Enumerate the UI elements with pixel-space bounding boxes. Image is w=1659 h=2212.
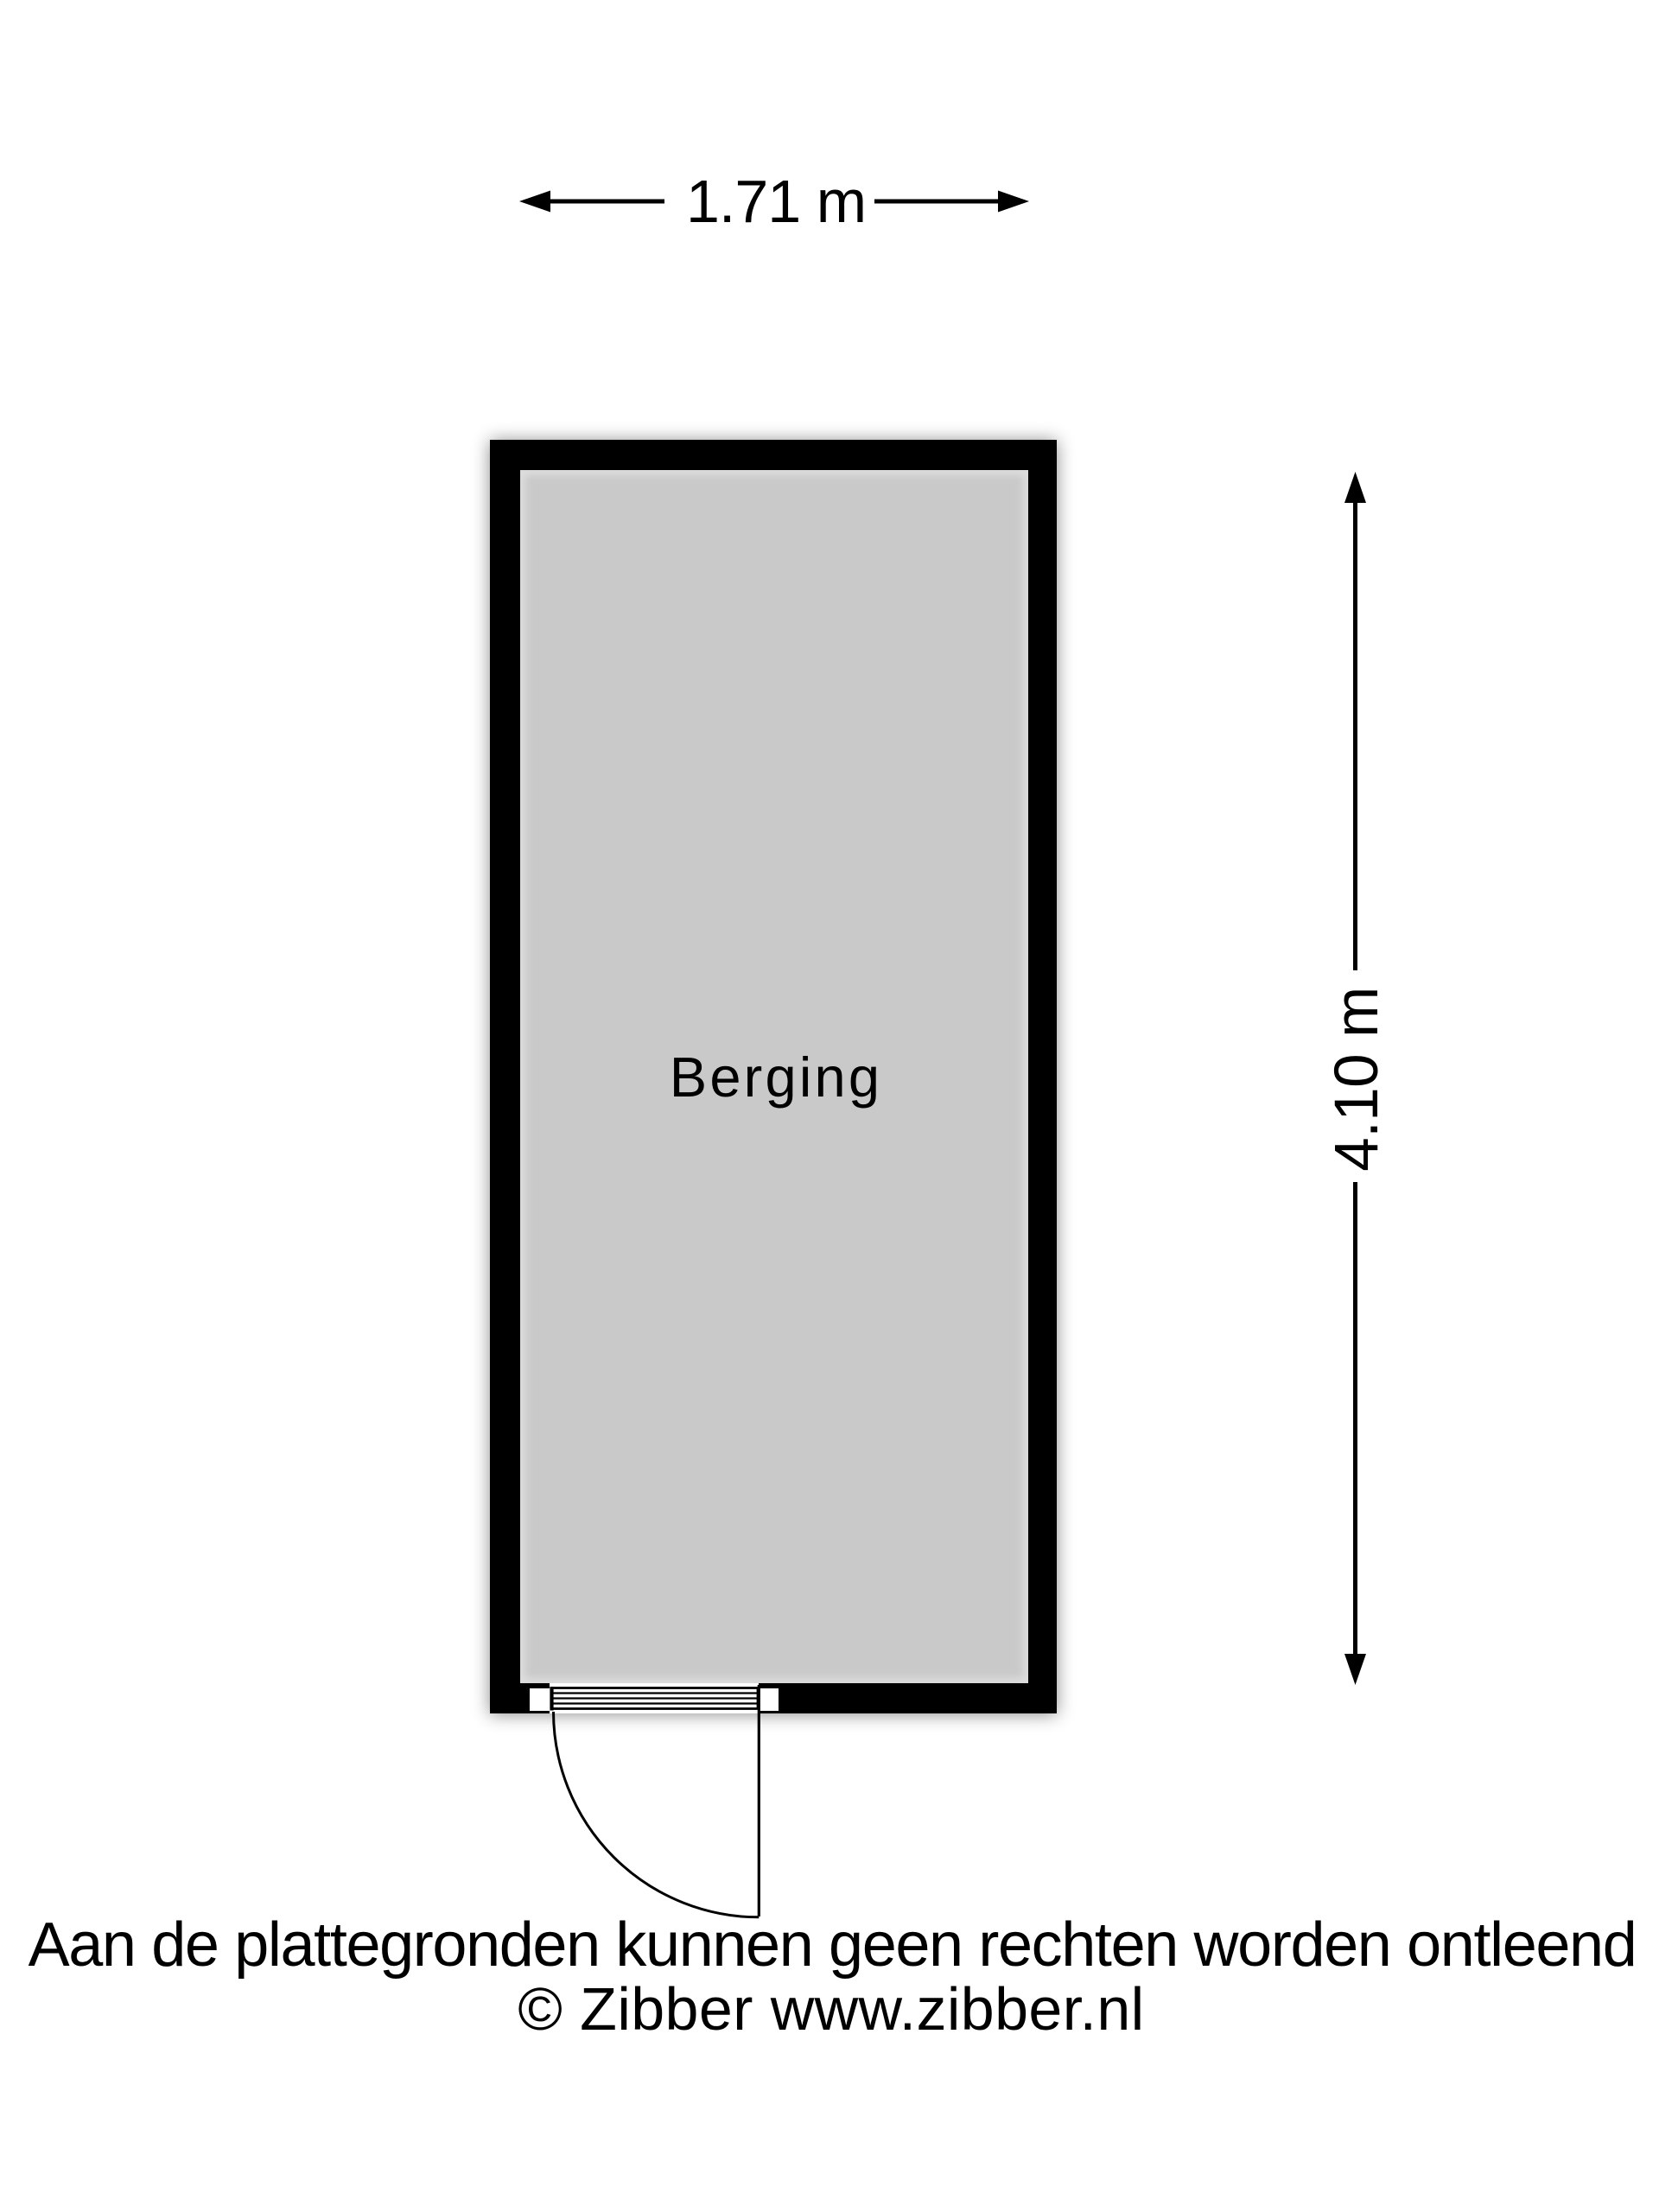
svg-text:Berging: Berging [670, 1046, 882, 1109]
svg-text:© Zibber www.zibber.nl: © Zibber www.zibber.nl [518, 1975, 1144, 2043]
svg-text:1.71 m: 1.71 m [686, 168, 866, 235]
svg-text:4.10 m: 4.10 m [1323, 987, 1391, 1171]
svg-text:Aan de plattegronden kunnen ge: Aan de plattegronden kunnen geen rechten… [29, 1910, 1637, 1980]
